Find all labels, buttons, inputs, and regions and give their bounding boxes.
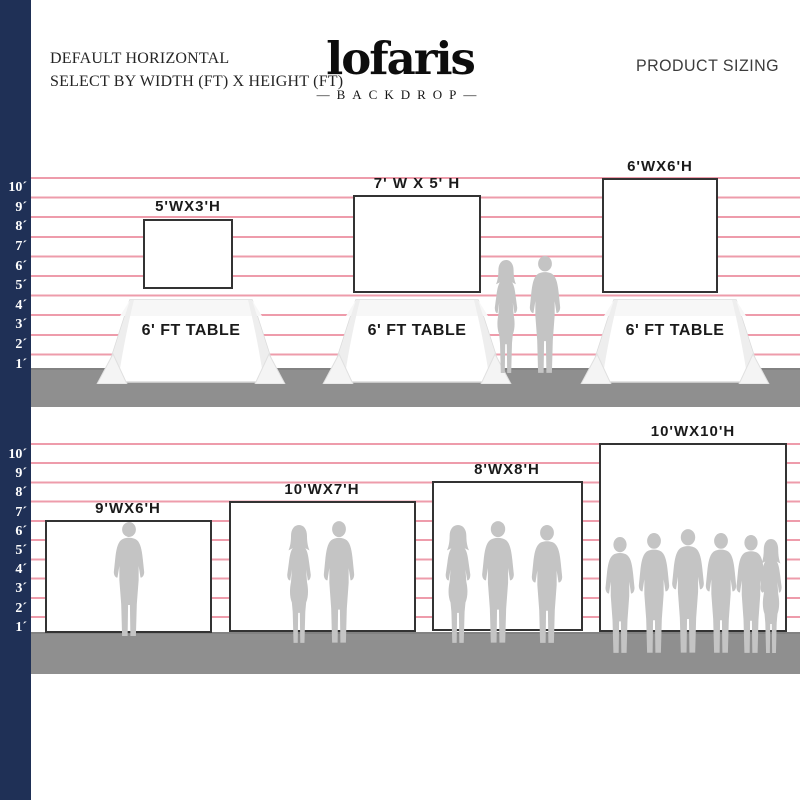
brand-logo: lofaris —BACKDROP—	[290, 34, 510, 103]
ruler-label: 4´	[0, 562, 27, 577]
ruler-label: 8´	[0, 485, 27, 500]
ruler-label: 5´	[0, 543, 27, 558]
ruler-label: 3´	[0, 317, 27, 332]
table-label: 6' FT TABLE	[570, 322, 780, 340]
ruler-label: 4´	[0, 298, 27, 313]
single-man-silhouette-icon	[100, 521, 158, 641]
logo-wordmark: lofaris	[290, 34, 510, 84]
ruler-label: 10´	[0, 180, 27, 195]
three-people-silhouette-icon	[436, 516, 574, 648]
ruler-label: 9´	[0, 466, 27, 481]
backdrop-size-label: 10'WX7'H	[237, 481, 407, 498]
backdrop-6x6	[602, 178, 718, 293]
ruler-label: 10´	[0, 447, 27, 462]
product-sizing-infographic: DEFAULT HORIZONTAL SELECT BY WIDTH (FT) …	[0, 0, 800, 800]
backdrop-5x3	[143, 219, 233, 289]
backdrop-size-label: 8'WX8'H	[422, 461, 592, 478]
backdrop-size-label: 9'WX6'H	[43, 500, 213, 517]
ruler-label: 2´	[0, 337, 27, 352]
ruler-label: 7´	[0, 239, 27, 254]
ruler-label: 1´	[0, 357, 27, 372]
backdrop-7x5	[353, 195, 481, 293]
table-label: 6' FT TABLE	[86, 322, 296, 340]
standing-couple-silhouette-icon	[486, 253, 568, 378]
ruler-label: 6´	[0, 524, 27, 539]
table-1	[86, 298, 296, 384]
ruler-label: 1´	[0, 620, 27, 635]
backdrop-size-label: 5'WX3'H	[103, 198, 273, 215]
ruler-label: 2´	[0, 601, 27, 616]
ruler-label: 5´	[0, 278, 27, 293]
ruler-label: 7´	[0, 505, 27, 520]
backdrop-size-label: 6'WX6'H	[575, 158, 745, 175]
table-label: 6' FT TABLE	[312, 322, 522, 340]
table-3	[570, 298, 780, 384]
page-title: PRODUCT SIZING	[636, 56, 786, 76]
standing-couple-silhouette-icon	[278, 518, 362, 648]
logo-tagline: —BACKDROP—	[290, 87, 510, 103]
ruler-label: 9´	[0, 200, 27, 215]
ruler-label: 3´	[0, 581, 27, 596]
backdrop-size-label: 10'WX10'H	[608, 423, 778, 440]
ruler-label: 8´	[0, 219, 27, 234]
backdrop-size-label: 7' W X 5' H	[332, 175, 502, 192]
six-people-group-silhouette-icon	[598, 526, 790, 658]
ruler-label: 6´	[0, 259, 27, 274]
ruler-bar	[0, 0, 31, 800]
